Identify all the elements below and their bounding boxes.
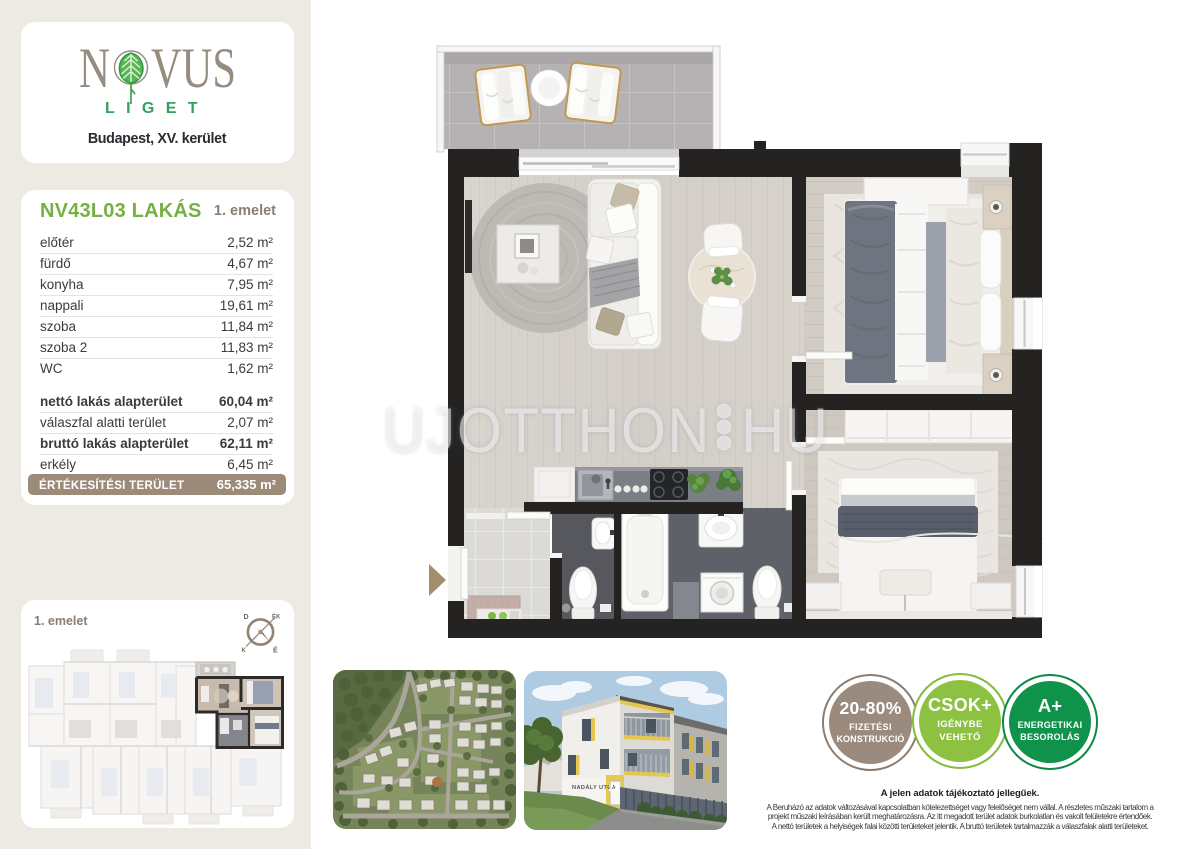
svg-text:VUS: VUS <box>151 37 236 100</box>
svg-text:LIGET: LIGET <box>105 100 211 117</box>
svg-text:Budapest, XV. kerület: Budapest, XV. kerület <box>88 131 227 147</box>
svg-text:UJOTTHON: UJOTTHON <box>383 396 711 466</box>
svg-text:N: N <box>79 37 110 100</box>
svg-text:HU: HU <box>741 396 828 466</box>
